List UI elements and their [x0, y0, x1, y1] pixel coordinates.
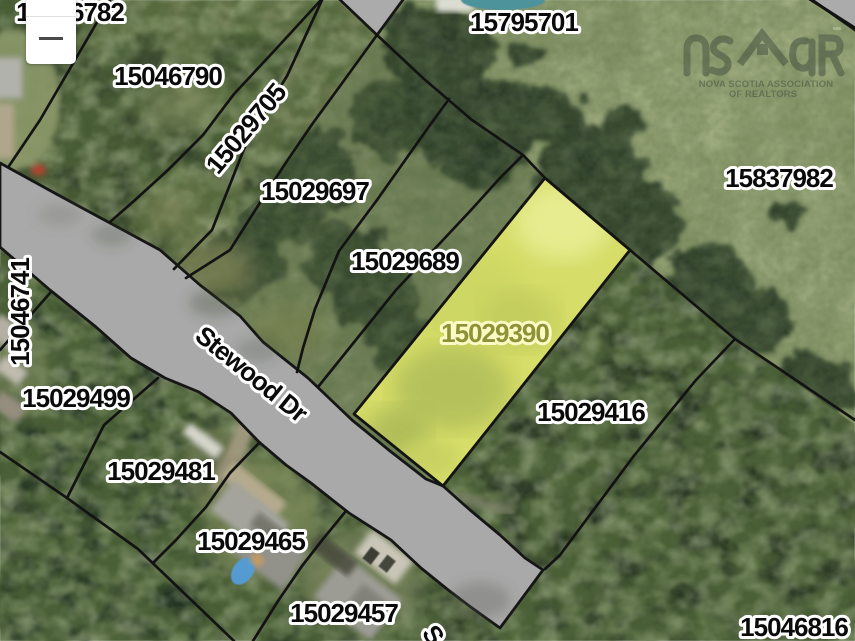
svg-text:15029390: 15029390 [441, 318, 549, 348]
svg-text:15029416: 15029416 [537, 397, 645, 427]
svg-text:15029481: 15029481 [107, 456, 215, 486]
svg-text:15029697: 15029697 [261, 176, 369, 206]
svg-text:OF REALTORS: OF REALTORS [729, 89, 797, 100]
svg-text:15046790: 15046790 [114, 61, 222, 91]
svg-text:15029689: 15029689 [351, 246, 459, 276]
svg-text:15029465: 15029465 [197, 526, 305, 556]
svg-text:15046816: 15046816 [740, 612, 848, 641]
svg-text:15029499: 15029499 [22, 383, 130, 413]
svg-text:15837982: 15837982 [725, 163, 833, 193]
svg-text:15795701: 15795701 [470, 7, 578, 37]
svg-text:15029457: 15029457 [290, 598, 398, 628]
svg-text:15046741: 15046741 [5, 258, 35, 366]
